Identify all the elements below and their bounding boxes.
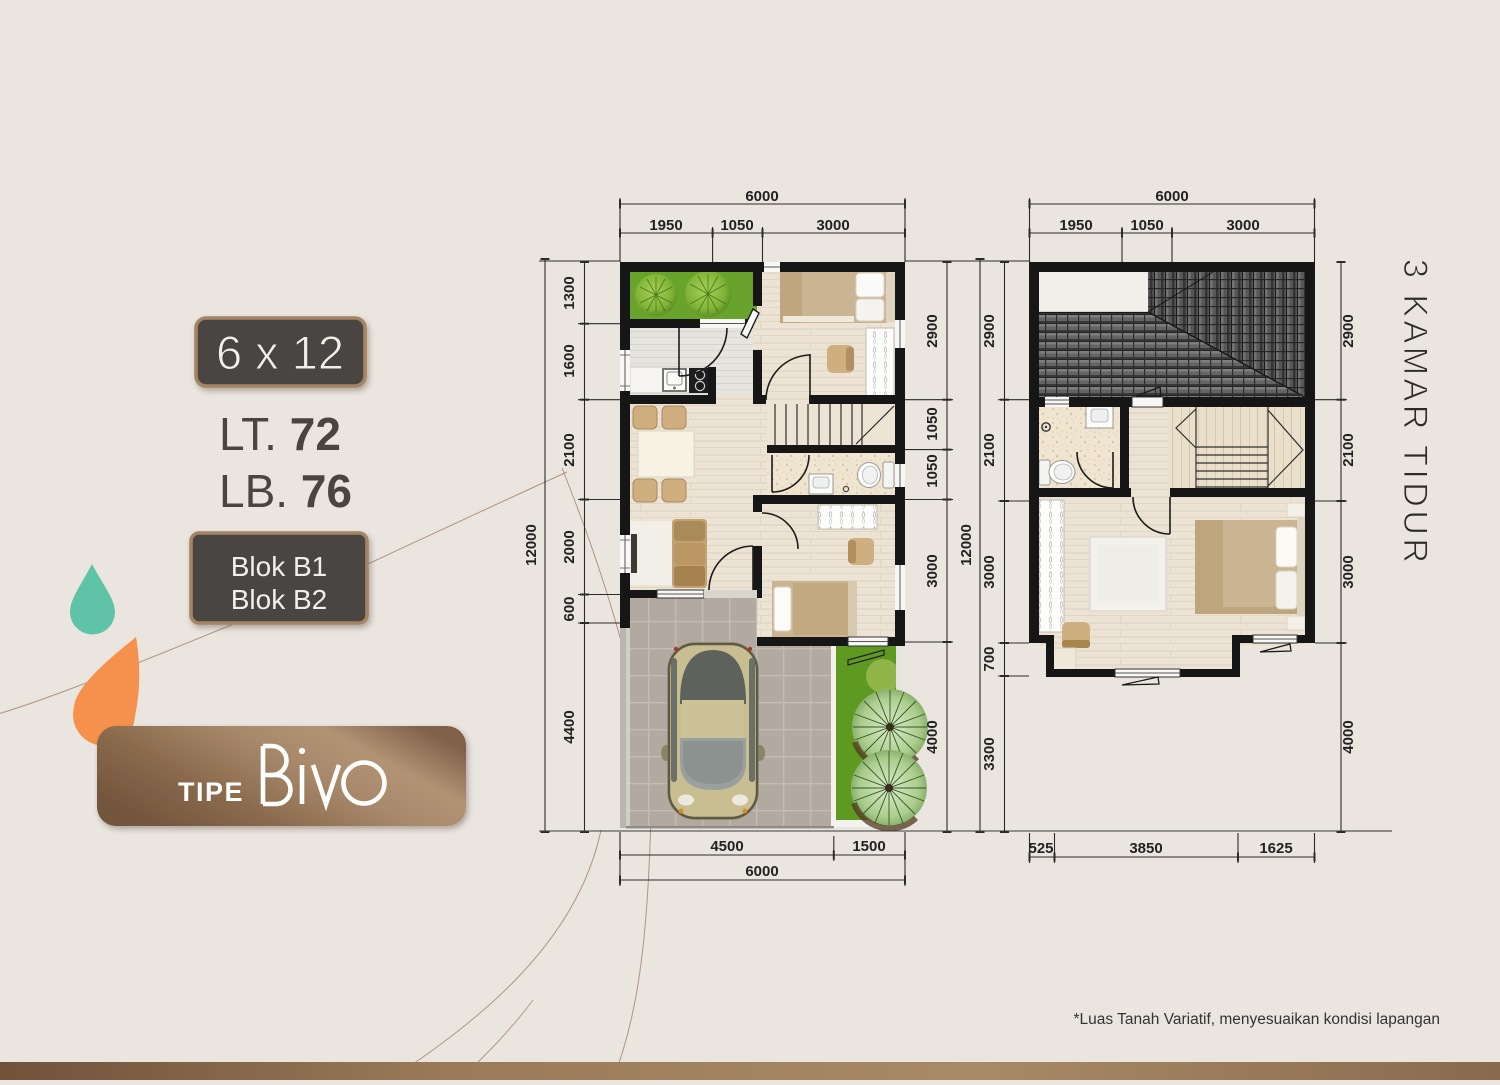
svg-text:6000: 6000	[1155, 188, 1188, 205]
svg-text:TIPE: TIPE	[178, 777, 244, 807]
svg-text:525: 525	[1028, 840, 1053, 857]
svg-text:4000: 4000	[1340, 720, 1357, 753]
svg-text:2100: 2100	[1340, 433, 1357, 466]
svg-text:4500: 4500	[710, 838, 743, 855]
svg-text:1950: 1950	[1059, 217, 1092, 234]
svg-text:12000: 12000	[958, 524, 975, 566]
svg-text:6000: 6000	[745, 188, 778, 205]
svg-text:*Luas Tanah Variatif, menyesua: *Luas Tanah Variatif, menyesuaikan kondi…	[1073, 1011, 1440, 1028]
svg-text:600: 600	[561, 596, 578, 621]
svg-text:2000: 2000	[561, 530, 578, 563]
svg-text:3000: 3000	[1226, 217, 1259, 234]
svg-text:1050: 1050	[1130, 217, 1163, 234]
svg-text:1300: 1300	[561, 276, 578, 309]
svg-text:2900: 2900	[924, 314, 941, 347]
svg-text:2100: 2100	[561, 433, 578, 466]
svg-text:1050: 1050	[720, 217, 753, 234]
svg-text:1625: 1625	[1259, 840, 1292, 857]
svg-text:3 KAMAR TIDUR: 3 KAMAR TIDUR	[1396, 259, 1434, 566]
svg-text:1050: 1050	[924, 454, 941, 487]
svg-text:3000: 3000	[924, 554, 941, 587]
svg-text:4000: 4000	[924, 720, 941, 753]
svg-text:6000: 6000	[745, 863, 778, 880]
svg-text:2900: 2900	[1340, 314, 1357, 347]
svg-text:LB. 76: LB. 76	[219, 465, 352, 517]
svg-text:6 x 12: 6 x 12	[216, 326, 344, 379]
svg-text:1500: 1500	[852, 838, 885, 855]
svg-text:3850: 3850	[1129, 840, 1162, 857]
svg-text:3000: 3000	[816, 217, 849, 234]
svg-text:Blok B2: Blok B2	[231, 584, 328, 615]
svg-text:700: 700	[981, 646, 998, 671]
svg-text:2100: 2100	[981, 433, 998, 466]
svg-text:3000: 3000	[1340, 555, 1357, 588]
svg-text:12000: 12000	[523, 524, 540, 566]
svg-text:3300: 3300	[981, 737, 998, 770]
svg-text:Blok B1: Blok B1	[231, 551, 328, 582]
svg-text:1600: 1600	[561, 344, 578, 377]
svg-text:1050: 1050	[924, 407, 941, 440]
svg-text:1950: 1950	[649, 217, 682, 234]
svg-text:2900: 2900	[981, 314, 998, 347]
svg-text:4400: 4400	[561, 710, 578, 743]
svg-text:LT. 72: LT. 72	[219, 408, 341, 460]
svg-text:3000: 3000	[981, 555, 998, 588]
